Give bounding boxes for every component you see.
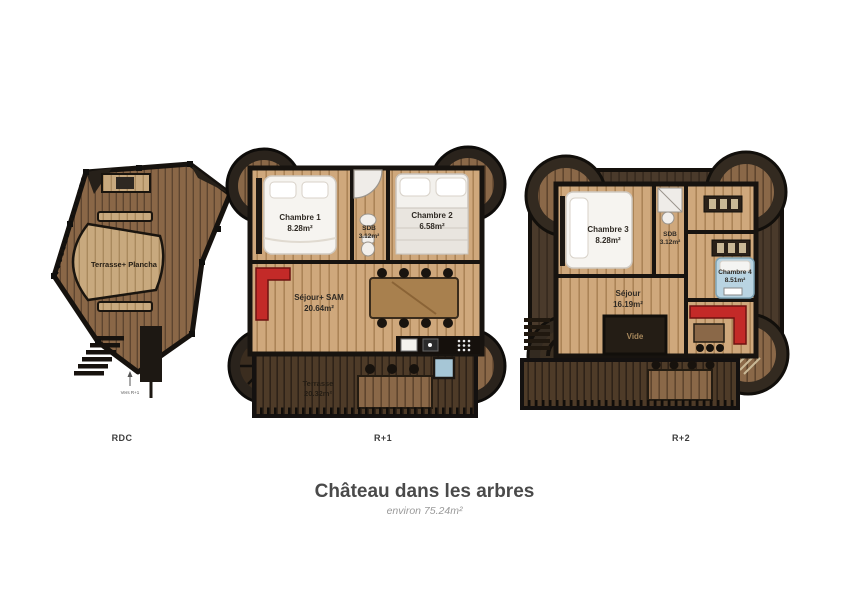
r1-plan-drawing: Chambre 1 8.28m² SDB 3.12m² Chambre 2 6.… [222,142,510,430]
dining-table-icon [370,268,458,328]
svg-text:Vers R+1: Vers R+1 [121,390,140,395]
coffee-table-icon [694,324,724,352]
room-label: Séjour+ SAM [294,293,344,302]
page-title: Château dans les arbres [0,481,849,503]
rdc-plan-drawing: Terrasse+ Plancha Vers R+1 [40,158,240,405]
floorplan-sheet: Terrasse+ Plancha Vers R+1 [0,0,849,600]
r2-plan-drawing: Chambre 3 8.28m² SDB 3.12m² Chambre 4 8.… [508,140,803,422]
kitchen-counter-icon [396,336,480,354]
stair-core [140,326,162,382]
room-area: 3.12m² [660,239,681,246]
floor-label-r2: R+2 [672,433,690,443]
room-label-terrasse-plancha: Terrasse+ Plancha [91,260,158,269]
room-area: 8.28m² [595,236,621,245]
glass-table-icon [434,358,454,378]
room-area: 3.12m² [359,233,380,240]
room-area: 8.51m² [725,277,746,284]
room-label: Séjour [616,289,641,298]
room-area: 16.19m² [613,300,643,309]
room-label: SDB [663,231,677,238]
title-block: Château dans les arbres environ 75.24m² [0,481,849,517]
room-label: Vide [627,332,644,341]
room-label: Chambre 2 [411,211,453,220]
room-label: SDB [362,225,376,232]
outdoor-table-icon [102,174,150,192]
room-label: Terrasse [303,379,334,388]
room-label: Chambre 4 [718,269,752,276]
room-area: 20.32m² [304,389,332,398]
room-area: 8.28m² [287,224,313,233]
room-label: Chambre 3 [587,225,629,234]
page-subtitle: environ 75.24m² [0,505,849,517]
room-label: Chambre 1 [279,213,321,222]
room-area: 6.58m² [419,222,445,231]
floor-label-rdc: RDC [112,433,133,443]
floor-label-r1: R+1 [374,433,392,443]
vers-r1-annotation: Vers R+1 [121,371,140,395]
room-area: 20.64m² [304,304,334,313]
